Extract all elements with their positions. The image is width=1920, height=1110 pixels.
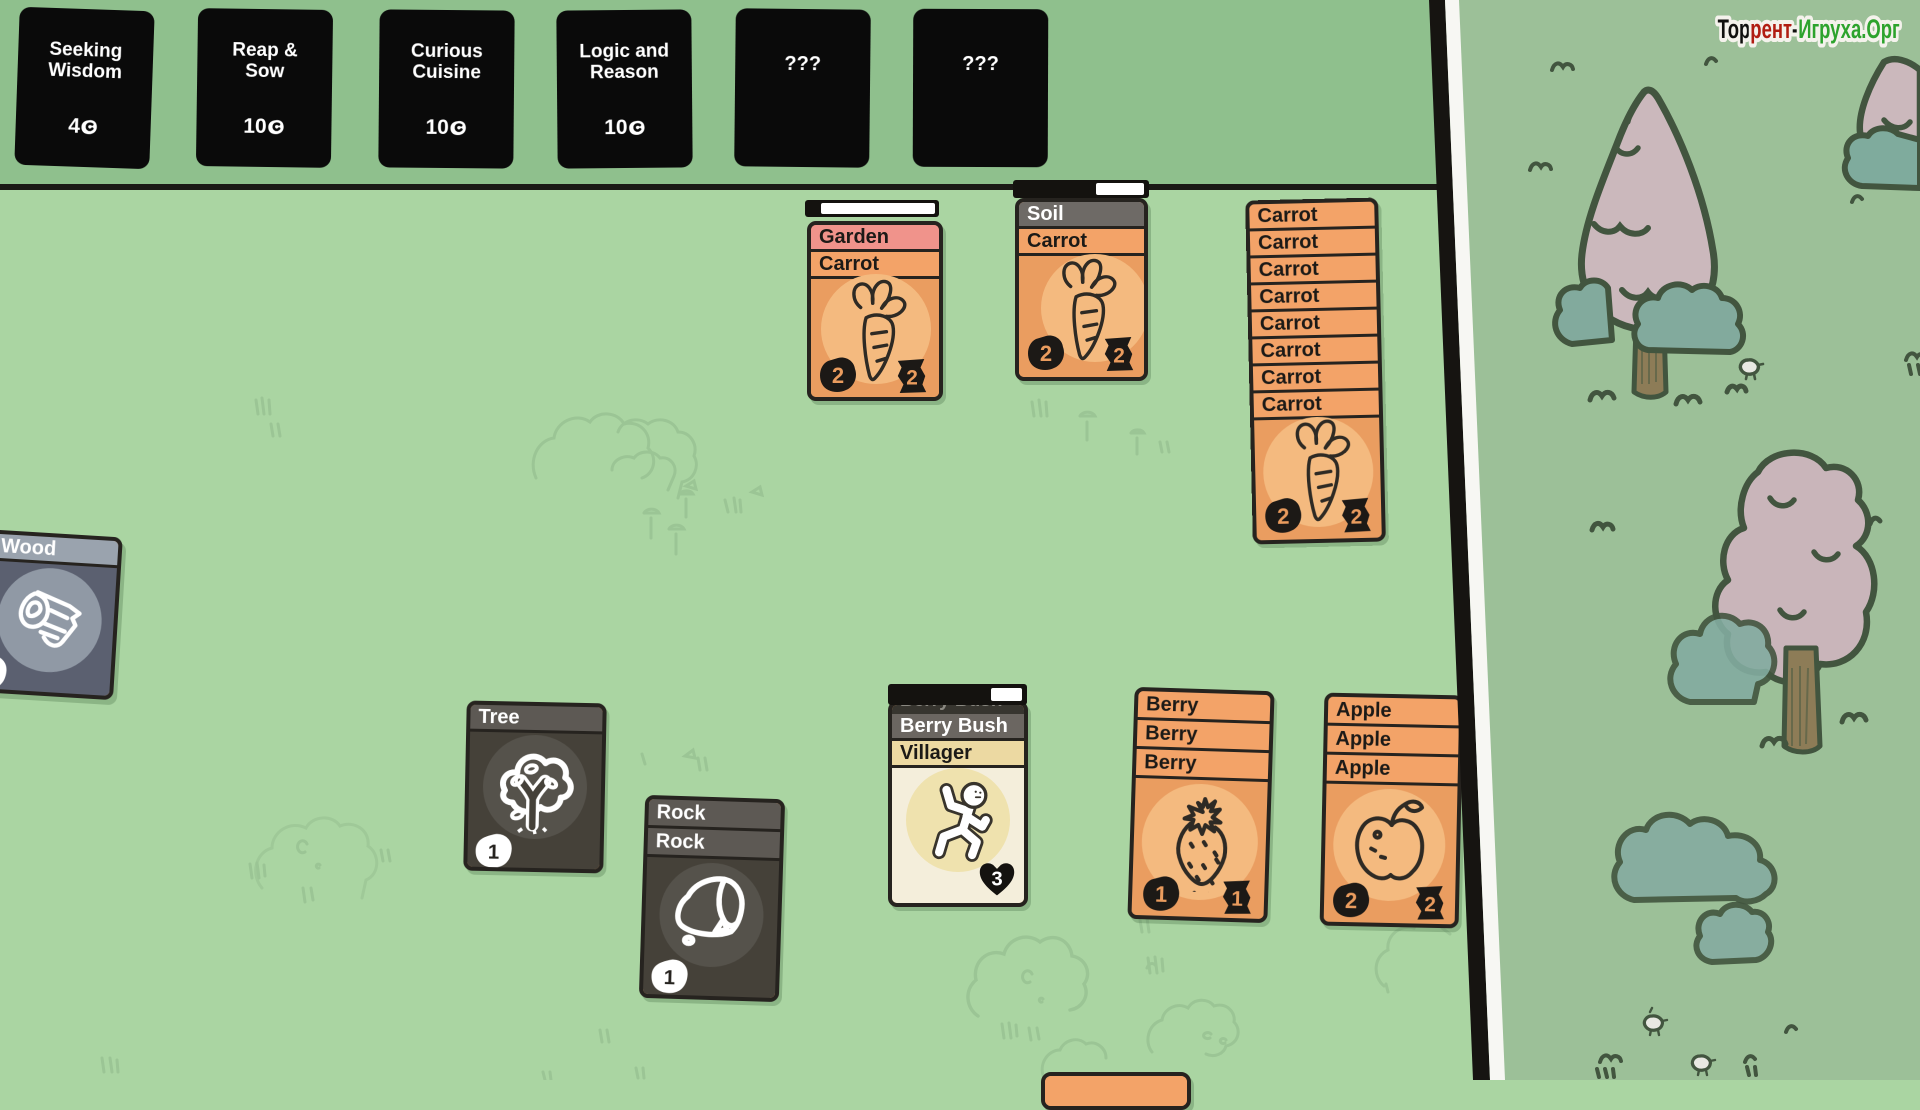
svg-text:Торрент-Игруха.Орг: Торрент-Игруха.Орг bbox=[1718, 13, 1900, 43]
